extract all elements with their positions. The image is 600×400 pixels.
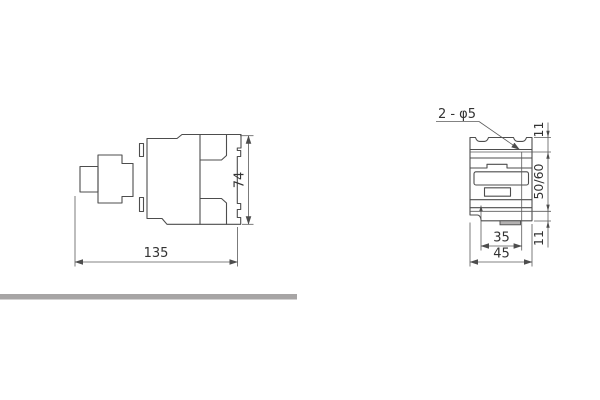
front-view-vertical-dimensions: 11 50/60 11	[531, 122, 551, 248]
side-view-top-clip	[140, 144, 144, 157]
leader-line	[479, 122, 520, 150]
top-offset-label: 11	[531, 122, 546, 138]
side-view-height-dimension: 74	[233, 136, 254, 225]
vertical-spacing-label: 50/60	[531, 163, 546, 199]
hole-callout-label: 2 - φ5	[438, 107, 476, 122]
dim-arrow	[546, 131, 549, 138]
front-view-hole-spacing-dimension: 35	[481, 231, 522, 247]
side-view-block-outline	[98, 155, 133, 203]
front-view-bottom-tab	[500, 221, 521, 225]
drawing-canvas: 135 74 2 - φ5	[0, 0, 600, 400]
engineering-drawing-page: 135 74 2 - φ5	[0, 0, 600, 400]
front-view-tab-line	[470, 164, 532, 168]
side-view-length-label: 135	[144, 246, 169, 261]
side-view-length-dimension: 135	[75, 196, 238, 267]
front-view: 2 - φ5 11 50/60 11 35 45	[436, 107, 551, 267]
side-view-bottom-clip	[140, 198, 144, 212]
dim-arrow	[546, 205, 549, 212]
side-view: 135 74	[75, 135, 254, 267]
divider-bar	[0, 294, 297, 300]
side-view-button-outline	[80, 167, 98, 193]
front-view-width-label: 45	[493, 247, 510, 262]
side-view-internal-step-top	[200, 135, 227, 161]
dim-arrow	[546, 152, 549, 159]
hole-callout: 2 - φ5	[436, 107, 520, 150]
side-view-height-label: 74	[233, 172, 248, 189]
front-view-small-recess	[485, 188, 511, 196]
lower-hole-marker-arrow	[479, 206, 483, 212]
front-view-label-recess	[474, 172, 529, 185]
bottom-offset-label: 11	[531, 230, 546, 246]
side-view-internal-step-bottom	[200, 199, 227, 225]
hole-spacing-label: 35	[493, 231, 510, 246]
dim-arrow	[546, 221, 549, 228]
